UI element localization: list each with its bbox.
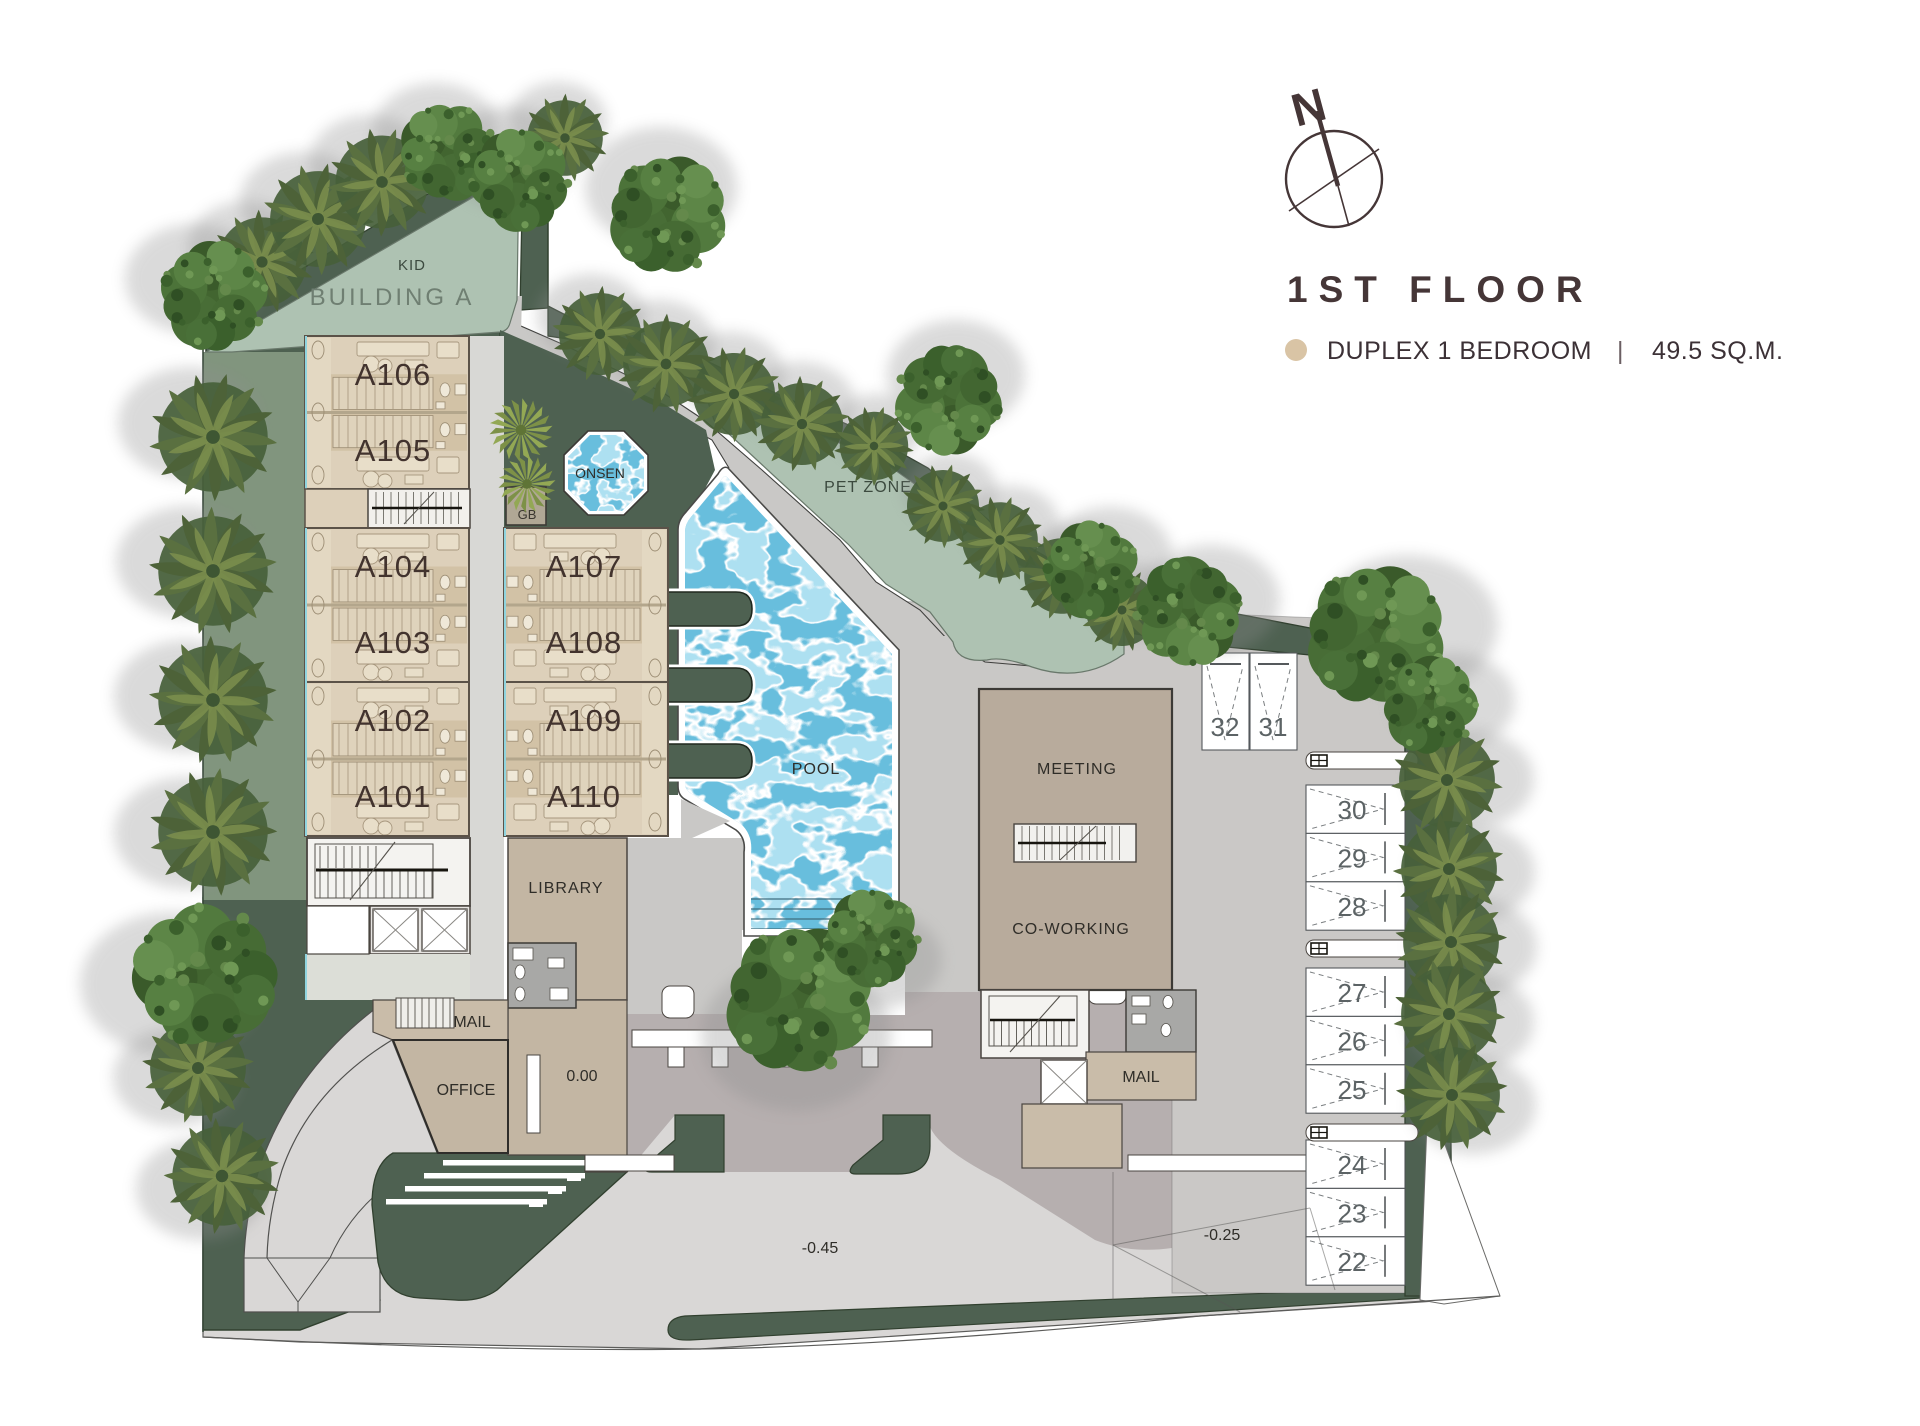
svg-text:A108: A108 [546, 625, 622, 660]
svg-text:OFFICE: OFFICE [437, 1082, 496, 1099]
svg-text:-0.25: -0.25 [1204, 1227, 1241, 1244]
svg-text:A104: A104 [355, 549, 431, 584]
svg-text:A105: A105 [355, 433, 431, 468]
svg-text:DUPLEX 1 BEDROOM: DUPLEX 1 BEDROOM [1327, 337, 1592, 365]
svg-text:26: 26 [1338, 1026, 1367, 1056]
svg-text:1ST FLOOR: 1ST FLOOR [1287, 269, 1594, 310]
svg-text:-0.45: -0.45 [802, 1240, 839, 1257]
svg-text:POOL: POOL [792, 761, 840, 778]
svg-text:31: 31 [1259, 712, 1288, 742]
svg-text:BUILDING A: BUILDING A [310, 284, 475, 311]
svg-text:32: 32 [1211, 712, 1240, 742]
svg-text:LIBRARY: LIBRARY [528, 880, 603, 897]
svg-text:A107: A107 [546, 549, 622, 584]
svg-text:29: 29 [1338, 843, 1367, 873]
svg-text:CO-WORKING: CO-WORKING [1012, 921, 1130, 938]
svg-text:0.00: 0.00 [566, 1068, 597, 1085]
svg-text:MAIL: MAIL [1122, 1069, 1159, 1086]
svg-text:A101: A101 [355, 779, 431, 814]
svg-text:MAIL: MAIL [453, 1014, 490, 1031]
svg-text:KID: KID [398, 257, 426, 274]
svg-text:25: 25 [1338, 1075, 1367, 1105]
svg-text:28: 28 [1338, 892, 1367, 922]
svg-text:A102: A102 [355, 703, 431, 738]
svg-text:A110: A110 [547, 779, 621, 814]
svg-text:MEETING: MEETING [1037, 761, 1117, 778]
svg-text:30: 30 [1338, 795, 1367, 825]
svg-text:A109: A109 [546, 703, 622, 738]
svg-text:23: 23 [1338, 1198, 1367, 1228]
svg-text:27: 27 [1338, 978, 1367, 1008]
svg-text:24: 24 [1338, 1150, 1367, 1180]
svg-text:|: | [1617, 337, 1624, 365]
svg-text:A103: A103 [355, 625, 431, 660]
svg-text:22: 22 [1338, 1247, 1367, 1277]
svg-text:A106: A106 [355, 357, 431, 392]
svg-text:PET ZONE: PET ZONE [824, 479, 912, 496]
svg-text:ONSEN: ONSEN [575, 465, 625, 481]
svg-text:49.5 SQ.M.: 49.5 SQ.M. [1652, 337, 1783, 365]
